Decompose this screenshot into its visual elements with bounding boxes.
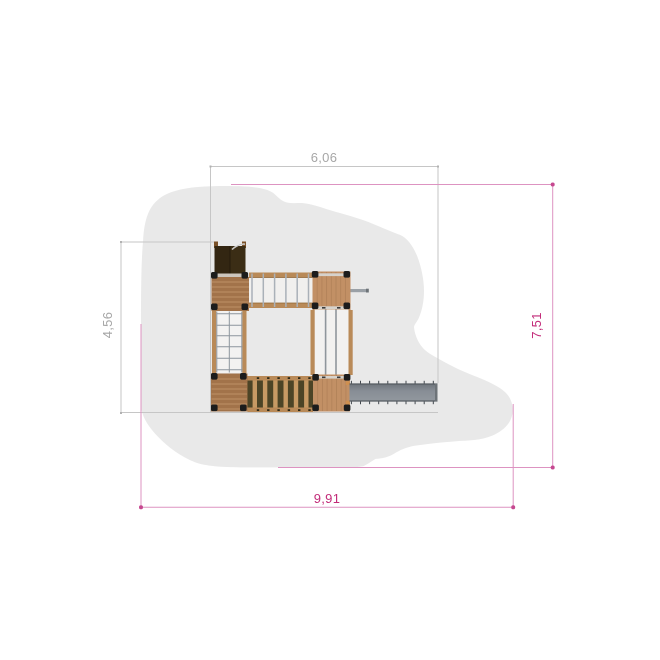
svg-text:4,56: 4,56: [100, 312, 115, 339]
svg-text:7,51: 7,51: [529, 312, 544, 339]
svg-text:9,91: 9,91: [314, 491, 341, 506]
svg-text:6,06: 6,06: [311, 150, 338, 165]
